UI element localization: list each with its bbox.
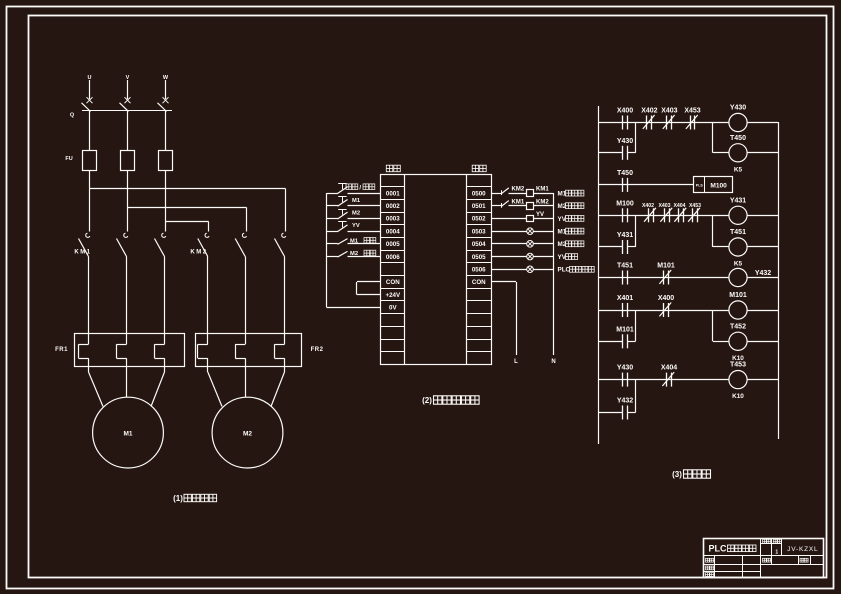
svg-text:X404: X404	[673, 203, 685, 209]
svg-text:0004: 0004	[386, 228, 400, 235]
svg-text:T452: T452	[730, 323, 746, 330]
svg-text:KM2: KM2	[190, 250, 207, 256]
svg-text:(2): (2)	[422, 396, 432, 405]
svg-text:0504: 0504	[472, 241, 486, 248]
svg-text:+24V: +24V	[385, 292, 400, 299]
svg-text:KM1: KM1	[74, 250, 91, 256]
svg-text:FU: FU	[65, 156, 72, 162]
svg-text:0506: 0506	[472, 266, 486, 273]
svg-text:CON: CON	[472, 279, 486, 286]
svg-text:KM2: KM2	[512, 187, 525, 193]
svg-text:0502: 0502	[472, 216, 486, 223]
svg-text:M1: M1	[352, 198, 361, 204]
svg-text:KM1: KM1	[536, 187, 549, 193]
svg-text:M101: M101	[616, 326, 634, 333]
svg-text:K5: K5	[734, 261, 743, 268]
svg-text:KM2: KM2	[536, 199, 549, 205]
svg-text:T450: T450	[730, 135, 746, 142]
svg-text:X453: X453	[689, 203, 701, 209]
svg-text:X400: X400	[617, 108, 633, 115]
svg-text:Y430: Y430	[730, 105, 746, 112]
svg-text:X404: X404	[661, 365, 677, 372]
svg-text:M100: M100	[616, 200, 634, 207]
svg-text:YV: YV	[352, 223, 360, 229]
svg-text:0505: 0505	[472, 254, 486, 261]
svg-text:PLS: PLS	[696, 183, 704, 187]
svg-text:Y430: Y430	[617, 365, 633, 372]
svg-text:0501: 0501	[472, 203, 486, 210]
svg-text:M1: M1	[123, 431, 132, 438]
svg-text:YV: YV	[536, 212, 544, 218]
svg-text:0503: 0503	[472, 228, 486, 235]
svg-text:M101: M101	[657, 263, 675, 270]
svg-text:0003: 0003	[386, 216, 400, 223]
svg-text:Y431: Y431	[617, 232, 633, 239]
svg-text:KM1: KM1	[512, 199, 525, 205]
svg-text:T450: T450	[617, 170, 633, 177]
svg-text:0500: 0500	[472, 190, 486, 197]
svg-text:Y432: Y432	[617, 398, 633, 405]
svg-text:M101: M101	[729, 292, 747, 299]
svg-text:Y432: Y432	[755, 270, 771, 277]
svg-text:Q: Q	[70, 113, 75, 119]
svg-text:X400: X400	[658, 295, 674, 302]
svg-text:0002: 0002	[386, 203, 400, 210]
svg-text:FR1: FR1	[55, 347, 68, 353]
svg-text:JV-KZXL: JV-KZXL	[787, 546, 818, 553]
svg-text:T451: T451	[730, 229, 746, 236]
svg-text:FR2: FR2	[311, 347, 324, 353]
svg-text:1: 1	[775, 550, 778, 556]
svg-text:CON: CON	[386, 279, 400, 286]
svg-text:0001: 0001	[386, 190, 400, 197]
svg-text:M2: M2	[352, 210, 360, 216]
svg-text:T451: T451	[617, 263, 633, 270]
svg-text:M100: M100	[710, 182, 727, 189]
svg-text:0006: 0006	[386, 254, 400, 261]
svg-text:N: N	[551, 359, 555, 365]
svg-text:M2: M2	[350, 251, 358, 257]
svg-text:0V: 0V	[389, 305, 397, 312]
svg-text:X453: X453	[684, 108, 700, 115]
svg-text:T453: T453	[730, 362, 746, 369]
svg-text:(3): (3)	[672, 470, 682, 479]
svg-text:X401: X401	[617, 295, 633, 302]
svg-text:(1): (1)	[173, 494, 183, 503]
svg-text:X402: X402	[641, 108, 657, 115]
svg-text:X402: X402	[642, 203, 654, 209]
svg-text:M2: M2	[243, 431, 252, 438]
svg-text:PLC: PLC	[558, 267, 571, 274]
svg-text:X403: X403	[661, 108, 677, 115]
svg-text:Y430: Y430	[617, 138, 633, 145]
svg-text:M1: M1	[350, 238, 359, 244]
svg-text:0005: 0005	[386, 241, 400, 248]
svg-text:X403: X403	[658, 203, 670, 209]
svg-text:K10: K10	[732, 393, 744, 400]
svg-text:Y431: Y431	[730, 197, 746, 204]
svg-text:K5: K5	[734, 166, 743, 173]
svg-text:PLC: PLC	[709, 544, 728, 554]
svg-text:L: L	[514, 359, 518, 365]
